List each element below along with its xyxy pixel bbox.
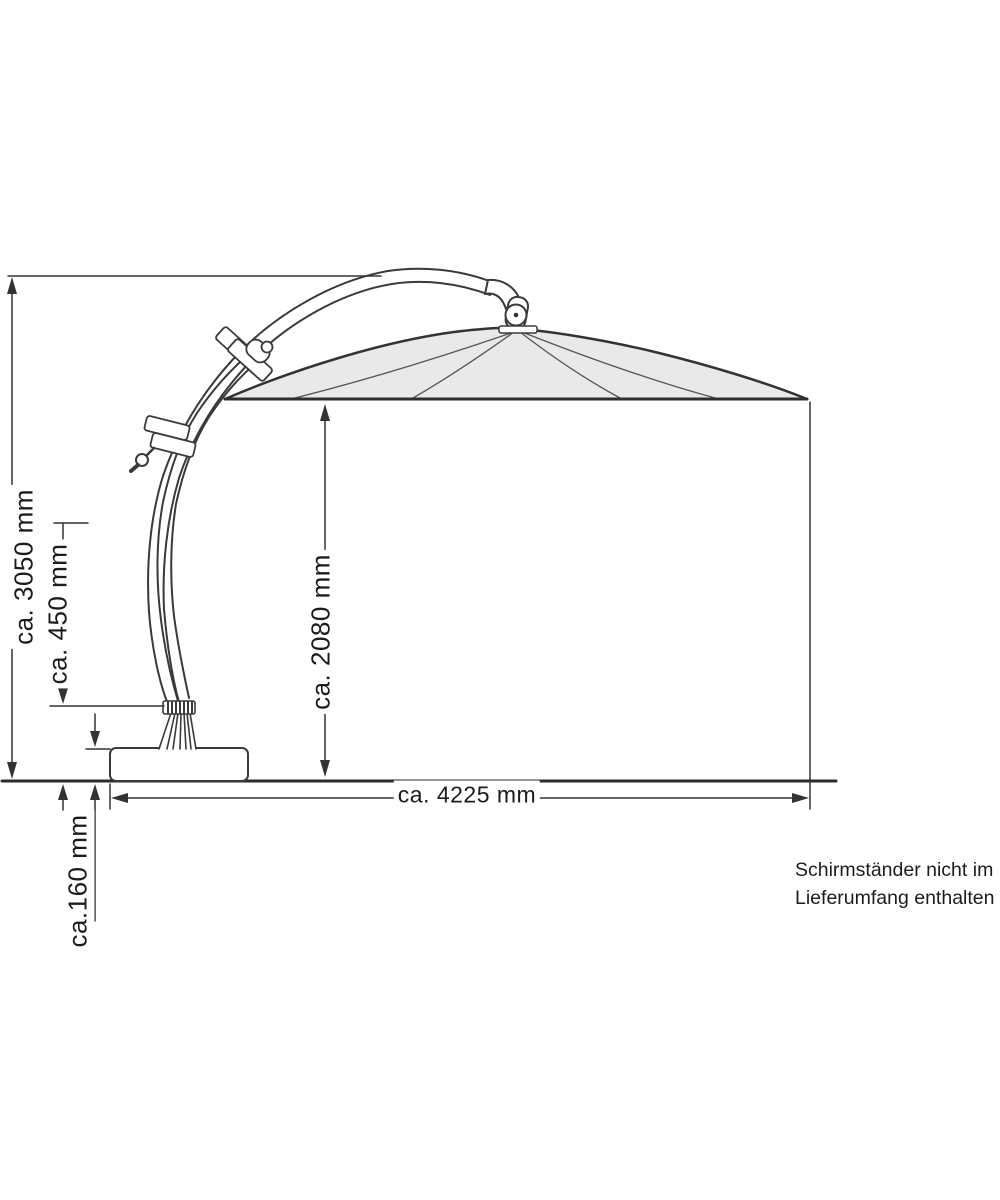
base-height-label: ca.160 mm — [62, 810, 95, 951]
hub-pivot-pin — [514, 313, 519, 318]
canopy-clearance-label: ca. 2080 mm — [305, 550, 338, 714]
total-height-label: ca. 3050 mm — [8, 485, 41, 649]
base-plate — [110, 748, 248, 781]
note-line-2: Lieferumfang enthalten — [795, 884, 994, 912]
canopy-hub — [485, 280, 537, 333]
note-line-1: Schirmständer nicht im — [795, 856, 994, 884]
total-width-label: ca. 4225 mm — [394, 781, 540, 810]
end-cap-knob — [262, 342, 273, 353]
support-tube-outer-edge — [157, 348, 256, 701]
not-included-note: Schirmständer nicht im Lieferumfang enth… — [795, 856, 994, 913]
crank-tip — [131, 465, 138, 471]
diagram-canvas: ca. 3050 mm ca. 450 mm ca. 2080 mm ca.16… — [0, 0, 1000, 1200]
hub-base-plate — [499, 326, 537, 333]
support-tube-inner-edge — [171, 357, 263, 698]
canopy-outline — [225, 328, 807, 399]
umbrella-dimension-diagram — [0, 0, 1000, 1200]
canopy — [225, 328, 807, 399]
stand-clearance-label: ca. 450 mm — [42, 540, 75, 689]
mast-collar-ribs — [168, 702, 192, 713]
base — [110, 701, 248, 781]
